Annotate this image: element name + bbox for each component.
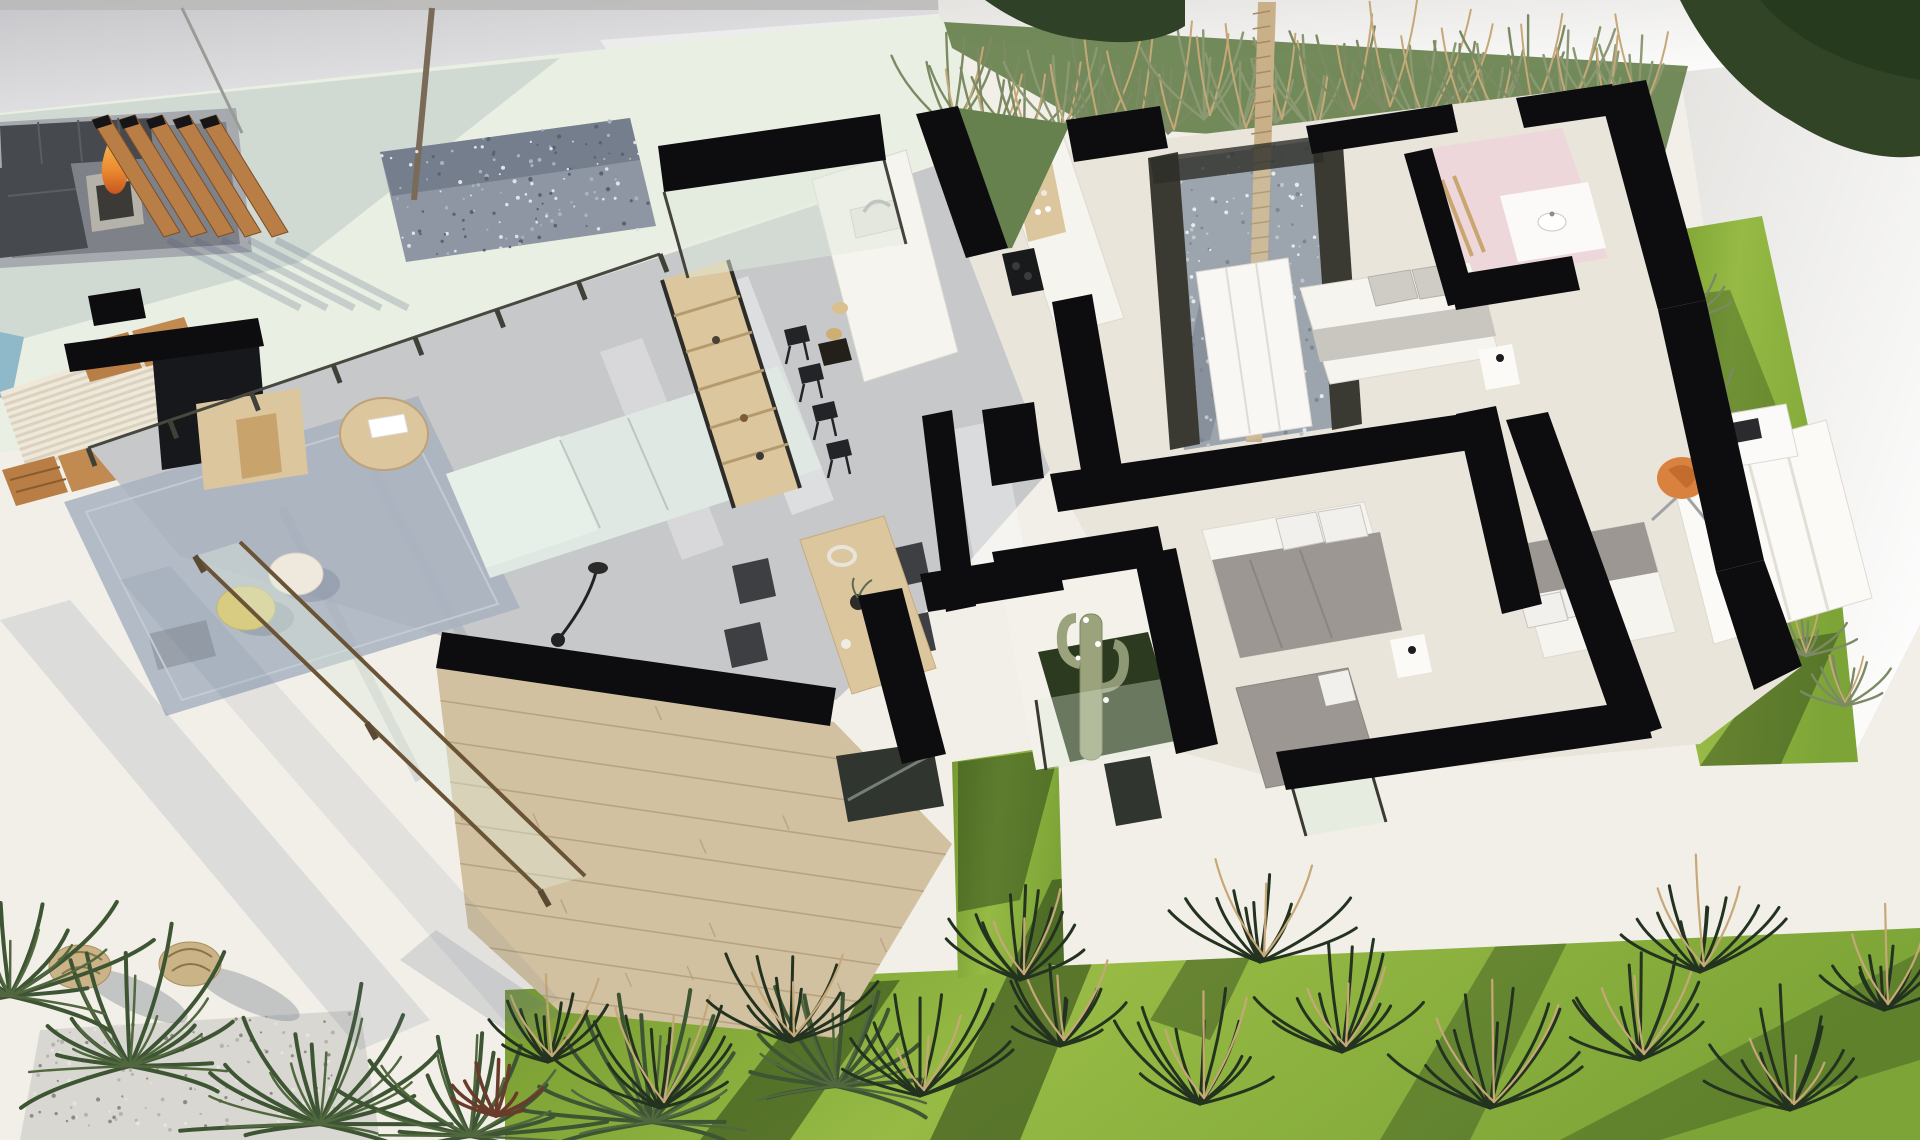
dining-chair [732,558,776,604]
speaker-panel [236,413,282,479]
pillow [1318,505,1368,543]
dining-chair [724,622,768,668]
floorplan-render: Aerial 3D cutaway render of a modern sin… [0,0,1920,1140]
scene-canvas: Aerial 3D cutaway render of a modern sin… [0,0,1920,1140]
